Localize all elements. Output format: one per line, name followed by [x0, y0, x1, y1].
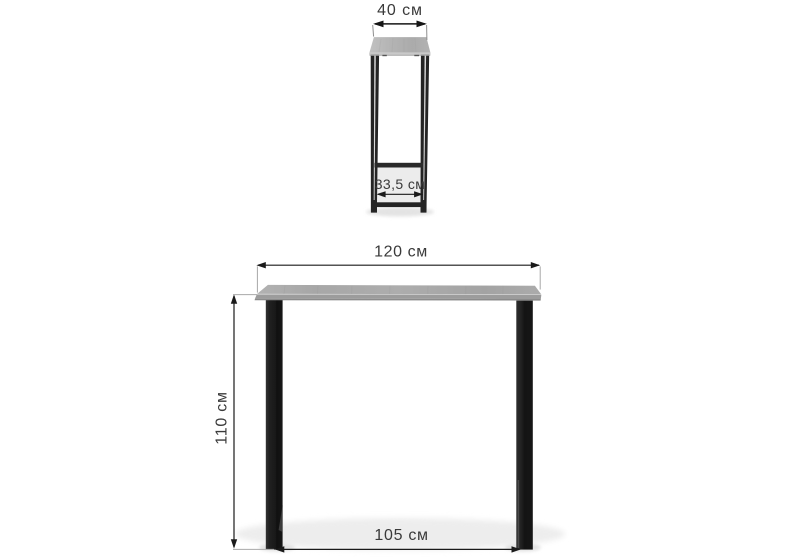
svg-text:110 см: 110 см — [213, 391, 230, 444]
svg-text:105 см: 105 см — [374, 527, 428, 544]
svg-text:40 см: 40 см — [377, 2, 423, 19]
svg-text:33,5 см: 33,5 см — [375, 176, 426, 192]
svg-text:120 см: 120 см — [374, 244, 428, 261]
